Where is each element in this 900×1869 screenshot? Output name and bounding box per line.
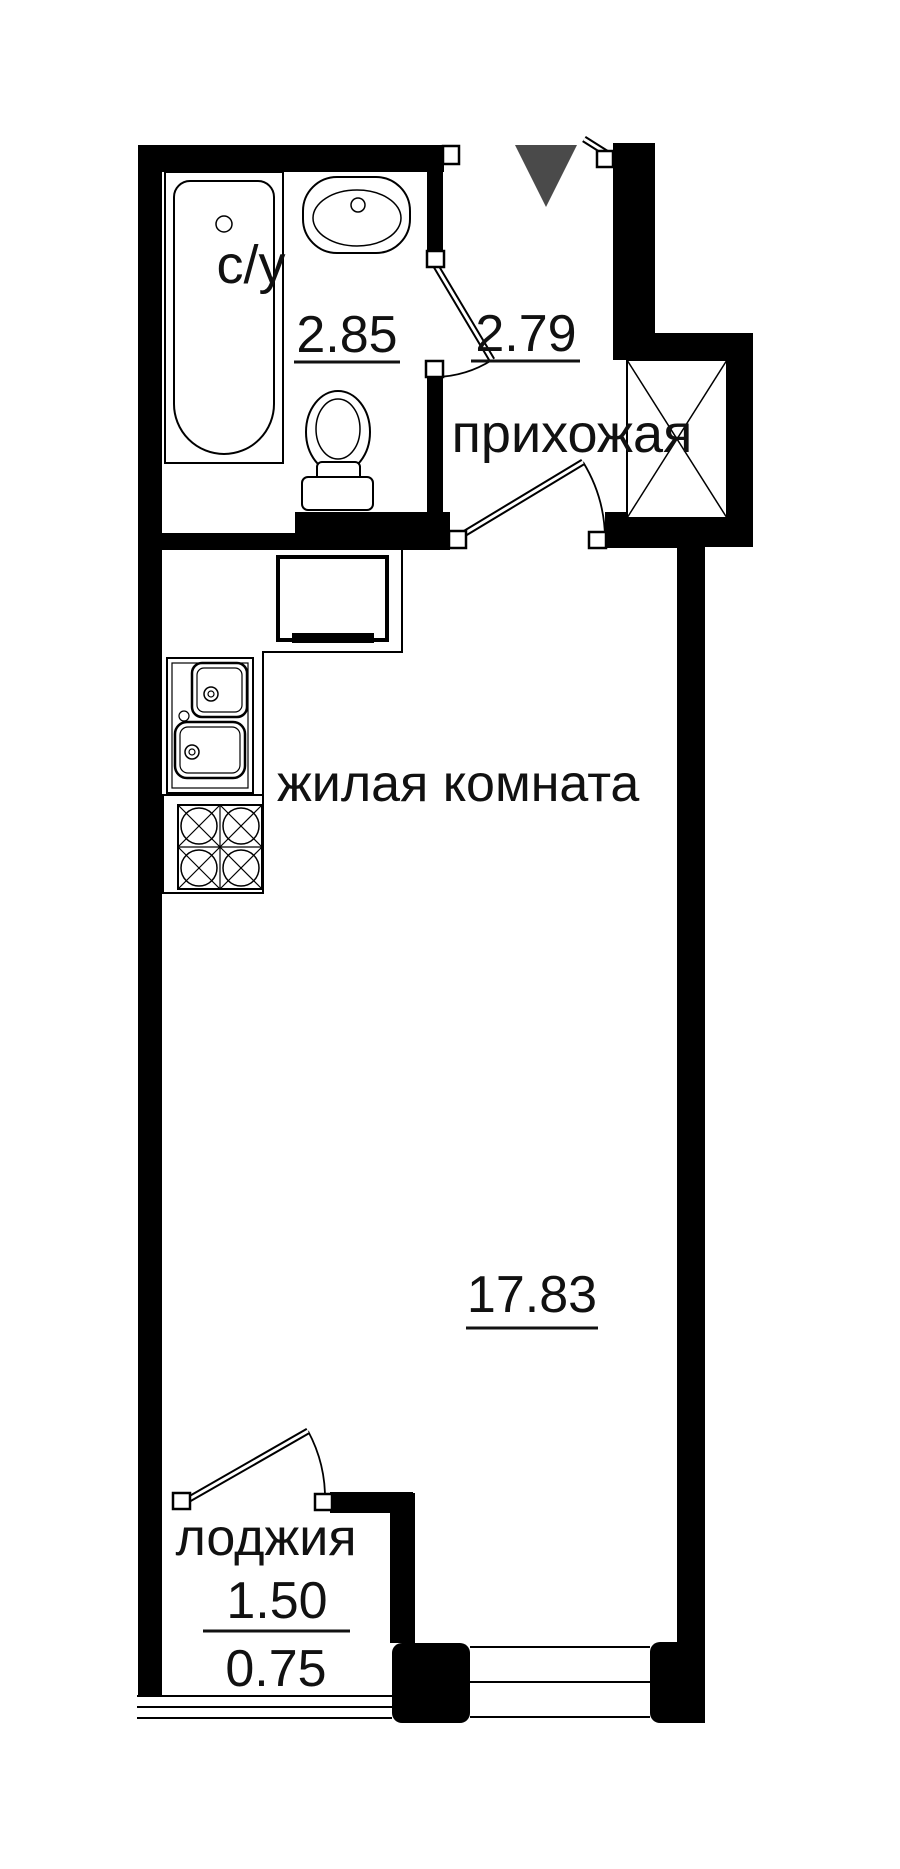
stove — [163, 795, 263, 893]
kitchen-sink-basin-top — [192, 663, 247, 717]
shaft-right-wall — [727, 333, 753, 547]
floor-plan-page: с/у 2.85 2.79 прихожая жилая комната 17.… — [0, 0, 900, 1869]
balcony-door-arc — [308, 1431, 325, 1502]
hallway-door-arc — [583, 462, 605, 538]
kitchen-sink — [167, 658, 253, 793]
toilet-tank — [302, 477, 373, 510]
hallway-door-jamb-left — [449, 531, 466, 548]
balcony-door-leaf-fill — [184, 1431, 308, 1502]
washing-machine-front — [292, 633, 374, 643]
washing-machine — [278, 557, 387, 643]
hallway-area: 2.79 — [475, 305, 576, 363]
toilet — [302, 391, 373, 510]
top-wall — [138, 145, 444, 172]
washbasin — [303, 177, 410, 253]
loggia-right-wall — [390, 1493, 415, 1643]
entrance-arrow-icon — [515, 145, 577, 207]
bathroom-door-jamb-bottom — [426, 361, 443, 377]
bathtub — [165, 172, 283, 463]
washbasin-rim — [303, 177, 410, 253]
top-wall-end-jamb — [443, 146, 459, 164]
entrance-door-jamb — [597, 151, 613, 167]
right-wall-main — [677, 546, 705, 1723]
bathroom-bottom-wall-right — [295, 512, 450, 550]
loggia-area-total: 1.50 — [226, 1572, 327, 1630]
bathroom-bottom-wall-left — [162, 533, 296, 550]
bathroom-right-wall-lower — [427, 376, 443, 533]
loggia-area-counted: 0.75 — [225, 1640, 326, 1698]
corner-pillar-left — [392, 1643, 470, 1723]
hallway-door — [449, 462, 606, 548]
loggia-glazing — [137, 1696, 392, 1718]
living-room-label: жилая комната — [277, 755, 639, 813]
bathroom-label: с/у — [216, 235, 285, 295]
bathroom-door-jamb-top — [427, 251, 444, 267]
balcony-door-jamb-left — [173, 1493, 190, 1509]
balcony-door-jamb-right — [315, 1494, 332, 1510]
right-wall-upper — [613, 143, 655, 360]
corner-pillar-right — [650, 1642, 705, 1723]
balcony-door — [173, 1431, 332, 1510]
loggia-label: лоджия — [175, 1509, 356, 1567]
floor-plan: с/у 2.85 2.79 прихожая жилая комната 17.… — [0, 0, 900, 1869]
left-wall — [138, 145, 162, 1697]
hallway-door-jamb-right — [589, 532, 606, 548]
hallway-door-leaf-fill — [457, 462, 583, 538]
bathroom-area: 2.85 — [296, 306, 397, 364]
living-room-window — [470, 1647, 650, 1717]
hallway-label: прихожая — [452, 404, 693, 464]
washing-machine-body — [278, 557, 387, 640]
living-room-area: 17.83 — [467, 1266, 597, 1324]
